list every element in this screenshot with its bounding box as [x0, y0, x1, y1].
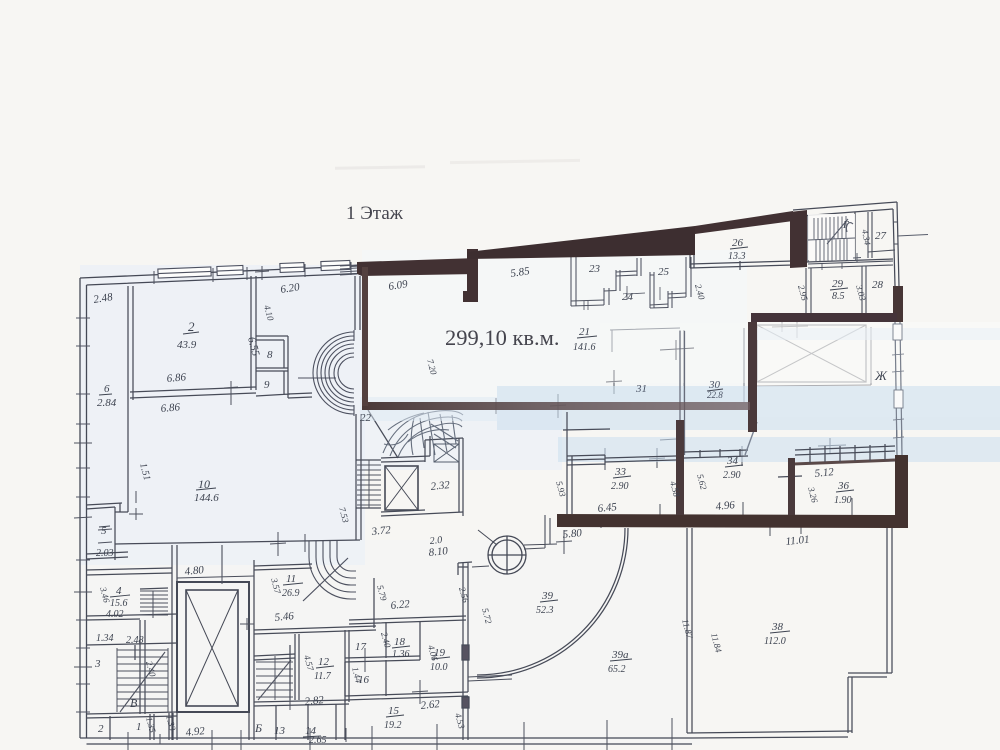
svg-text:13: 13	[274, 725, 286, 737]
svg-text:1.34: 1.34	[96, 633, 114, 644]
svg-text:1.90: 1.90	[834, 495, 852, 506]
svg-text:27: 27	[875, 230, 887, 242]
svg-text:22.8: 22.8	[707, 390, 723, 400]
svg-text:39: 39	[541, 590, 554, 602]
svg-text:6: 6	[104, 383, 110, 395]
svg-text:17: 17	[355, 641, 367, 653]
svg-text:Г: Г	[842, 220, 849, 231]
svg-text:112.0: 112.0	[764, 636, 786, 647]
svg-text:11.7: 11.7	[314, 671, 332, 682]
svg-text:3: 3	[94, 658, 101, 670]
svg-text:28: 28	[872, 279, 884, 291]
svg-text:13.3: 13.3	[728, 251, 746, 262]
svg-text:Б: Б	[254, 721, 262, 735]
svg-text:26: 26	[732, 237, 744, 249]
svg-text:2.82: 2.82	[304, 694, 325, 708]
svg-text:23: 23	[589, 263, 601, 275]
svg-text:33: 33	[614, 466, 627, 478]
svg-text:144.6: 144.6	[194, 492, 219, 504]
svg-text:19: 19	[434, 647, 446, 659]
svg-text:299,10 кв.м.: 299,10 кв.м.	[445, 325, 560, 350]
svg-text:4.92: 4.92	[185, 725, 206, 739]
svg-text:10.0: 10.0	[430, 662, 448, 673]
svg-text:15: 15	[388, 705, 400, 717]
svg-text:19.2: 19.2	[384, 720, 402, 731]
svg-text:1 Этаж: 1 Этаж	[346, 203, 404, 224]
svg-text:4.80: 4.80	[184, 564, 205, 578]
svg-text:43.9: 43.9	[177, 339, 197, 351]
svg-text:2.32: 2.32	[430, 479, 451, 493]
svg-text:29: 29	[832, 278, 844, 290]
svg-text:6.86: 6.86	[160, 401, 181, 415]
svg-text:Ж: Ж	[874, 368, 888, 383]
svg-text:9: 9	[264, 379, 270, 391]
svg-text:6.45: 6.45	[597, 501, 618, 515]
svg-text:2.62: 2.62	[420, 698, 441, 712]
svg-text:4.02: 4.02	[106, 609, 124, 620]
svg-text:1.36: 1.36	[392, 649, 410, 660]
svg-text:11.01: 11.01	[785, 534, 810, 548]
svg-text:8.5: 8.5	[832, 291, 845, 302]
svg-text:65.2: 65.2	[608, 664, 626, 675]
svg-text:2: 2	[98, 723, 104, 735]
svg-text:2.84: 2.84	[97, 397, 117, 409]
svg-text:В: В	[130, 696, 138, 710]
svg-text:21: 21	[579, 326, 590, 338]
svg-text:11: 11	[286, 573, 296, 585]
svg-text:2.03: 2.03	[96, 548, 114, 559]
svg-text:25: 25	[658, 266, 670, 278]
svg-text:24: 24	[622, 291, 634, 303]
svg-text:12: 12	[318, 656, 330, 668]
svg-text:8: 8	[267, 349, 273, 361]
svg-text:2: 2	[188, 319, 195, 334]
svg-text:34: 34	[726, 455, 739, 467]
svg-text:5.12: 5.12	[814, 466, 835, 480]
svg-text:6.22: 6.22	[390, 598, 411, 612]
svg-text:38: 38	[771, 621, 784, 633]
svg-text:5.46: 5.46	[274, 610, 295, 624]
svg-text:6.86: 6.86	[166, 371, 187, 385]
svg-text:2.90: 2.90	[723, 470, 741, 481]
svg-text:5.80: 5.80	[562, 527, 583, 541]
svg-text:36: 36	[837, 480, 850, 492]
svg-text:4: 4	[116, 585, 122, 597]
svg-text:3.72: 3.72	[370, 524, 392, 538]
svg-text:2.90: 2.90	[611, 481, 629, 492]
svg-text:22: 22	[360, 412, 372, 424]
svg-text:141.6: 141.6	[573, 342, 596, 353]
svg-text:52.3: 52.3	[536, 605, 554, 616]
svg-text:26.9: 26.9	[282, 588, 300, 599]
svg-text:2.48: 2.48	[126, 635, 144, 646]
svg-text:31: 31	[635, 383, 647, 395]
svg-text:4.96: 4.96	[715, 499, 736, 513]
svg-text:8.10: 8.10	[428, 545, 449, 559]
svg-text:1: 1	[136, 721, 142, 733]
svg-text:18: 18	[394, 636, 406, 648]
svg-text:15.6: 15.6	[110, 598, 128, 609]
